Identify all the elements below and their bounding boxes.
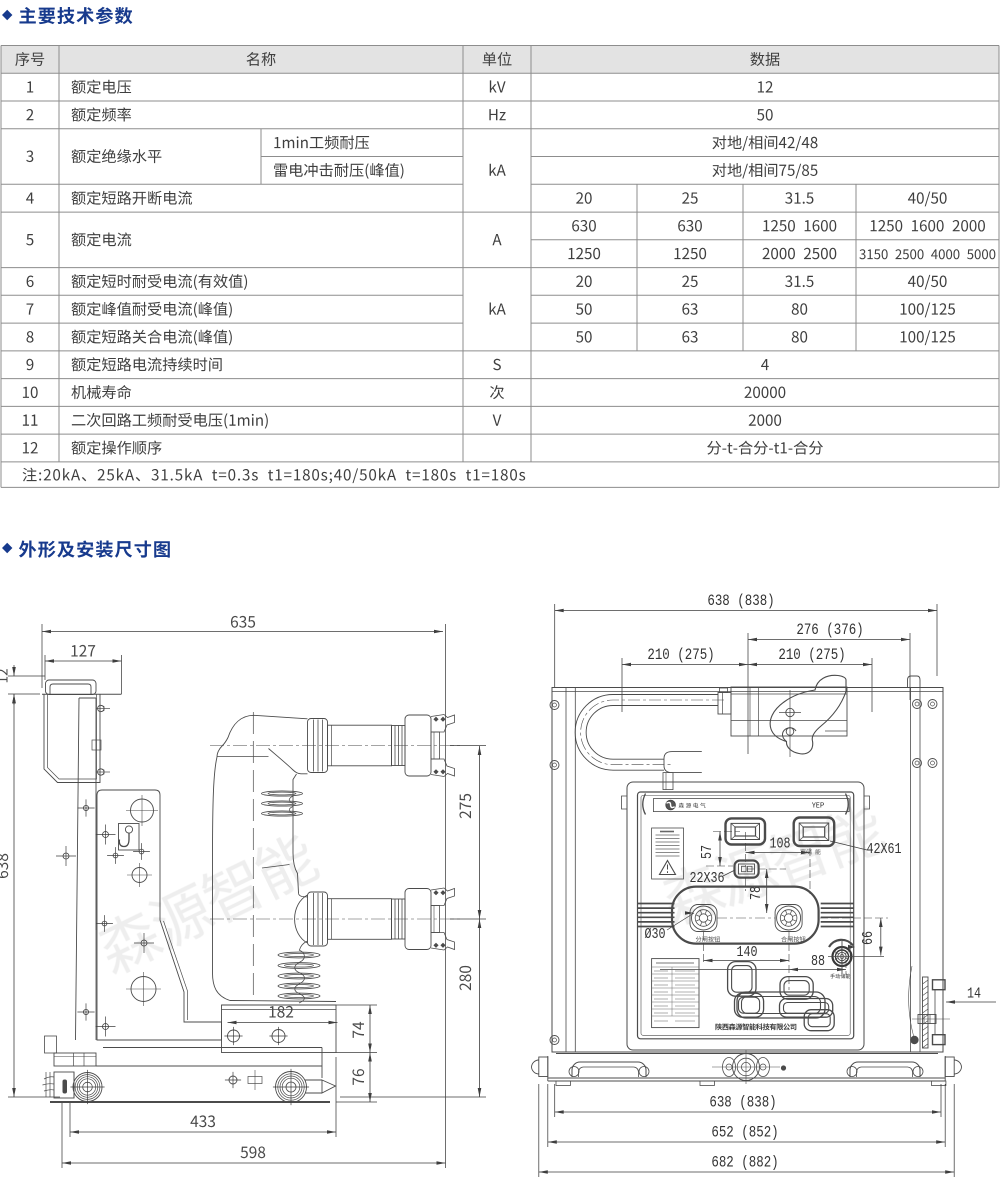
svg-text:42X61: 42X61: [866, 842, 901, 859]
svg-text:14: 14: [967, 986, 981, 1003]
svg-text:276 (376): 276 (376): [796, 622, 863, 640]
svg-text:88: 88: [811, 954, 825, 971]
svg-text:682 (882): 682 (882): [711, 1154, 778, 1172]
svg-text:210 (275): 210 (275): [647, 647, 714, 665]
svg-text:22X36: 22X36: [689, 871, 724, 888]
svg-text:638 (838): 638 (838): [709, 1094, 776, 1112]
svg-text:140: 140: [736, 945, 757, 962]
svg-text:Ø30: Ø30: [644, 927, 665, 944]
svg-text:78: 78: [749, 886, 766, 900]
svg-text:66: 66: [861, 931, 878, 945]
svg-text:57: 57: [700, 845, 717, 859]
svg-text:638 (838): 638 (838): [707, 593, 774, 611]
svg-text:652 (852): 652 (852): [711, 1124, 778, 1142]
svg-text:210 (275): 210 (275): [778, 647, 845, 665]
svg-text:108: 108: [769, 836, 790, 853]
